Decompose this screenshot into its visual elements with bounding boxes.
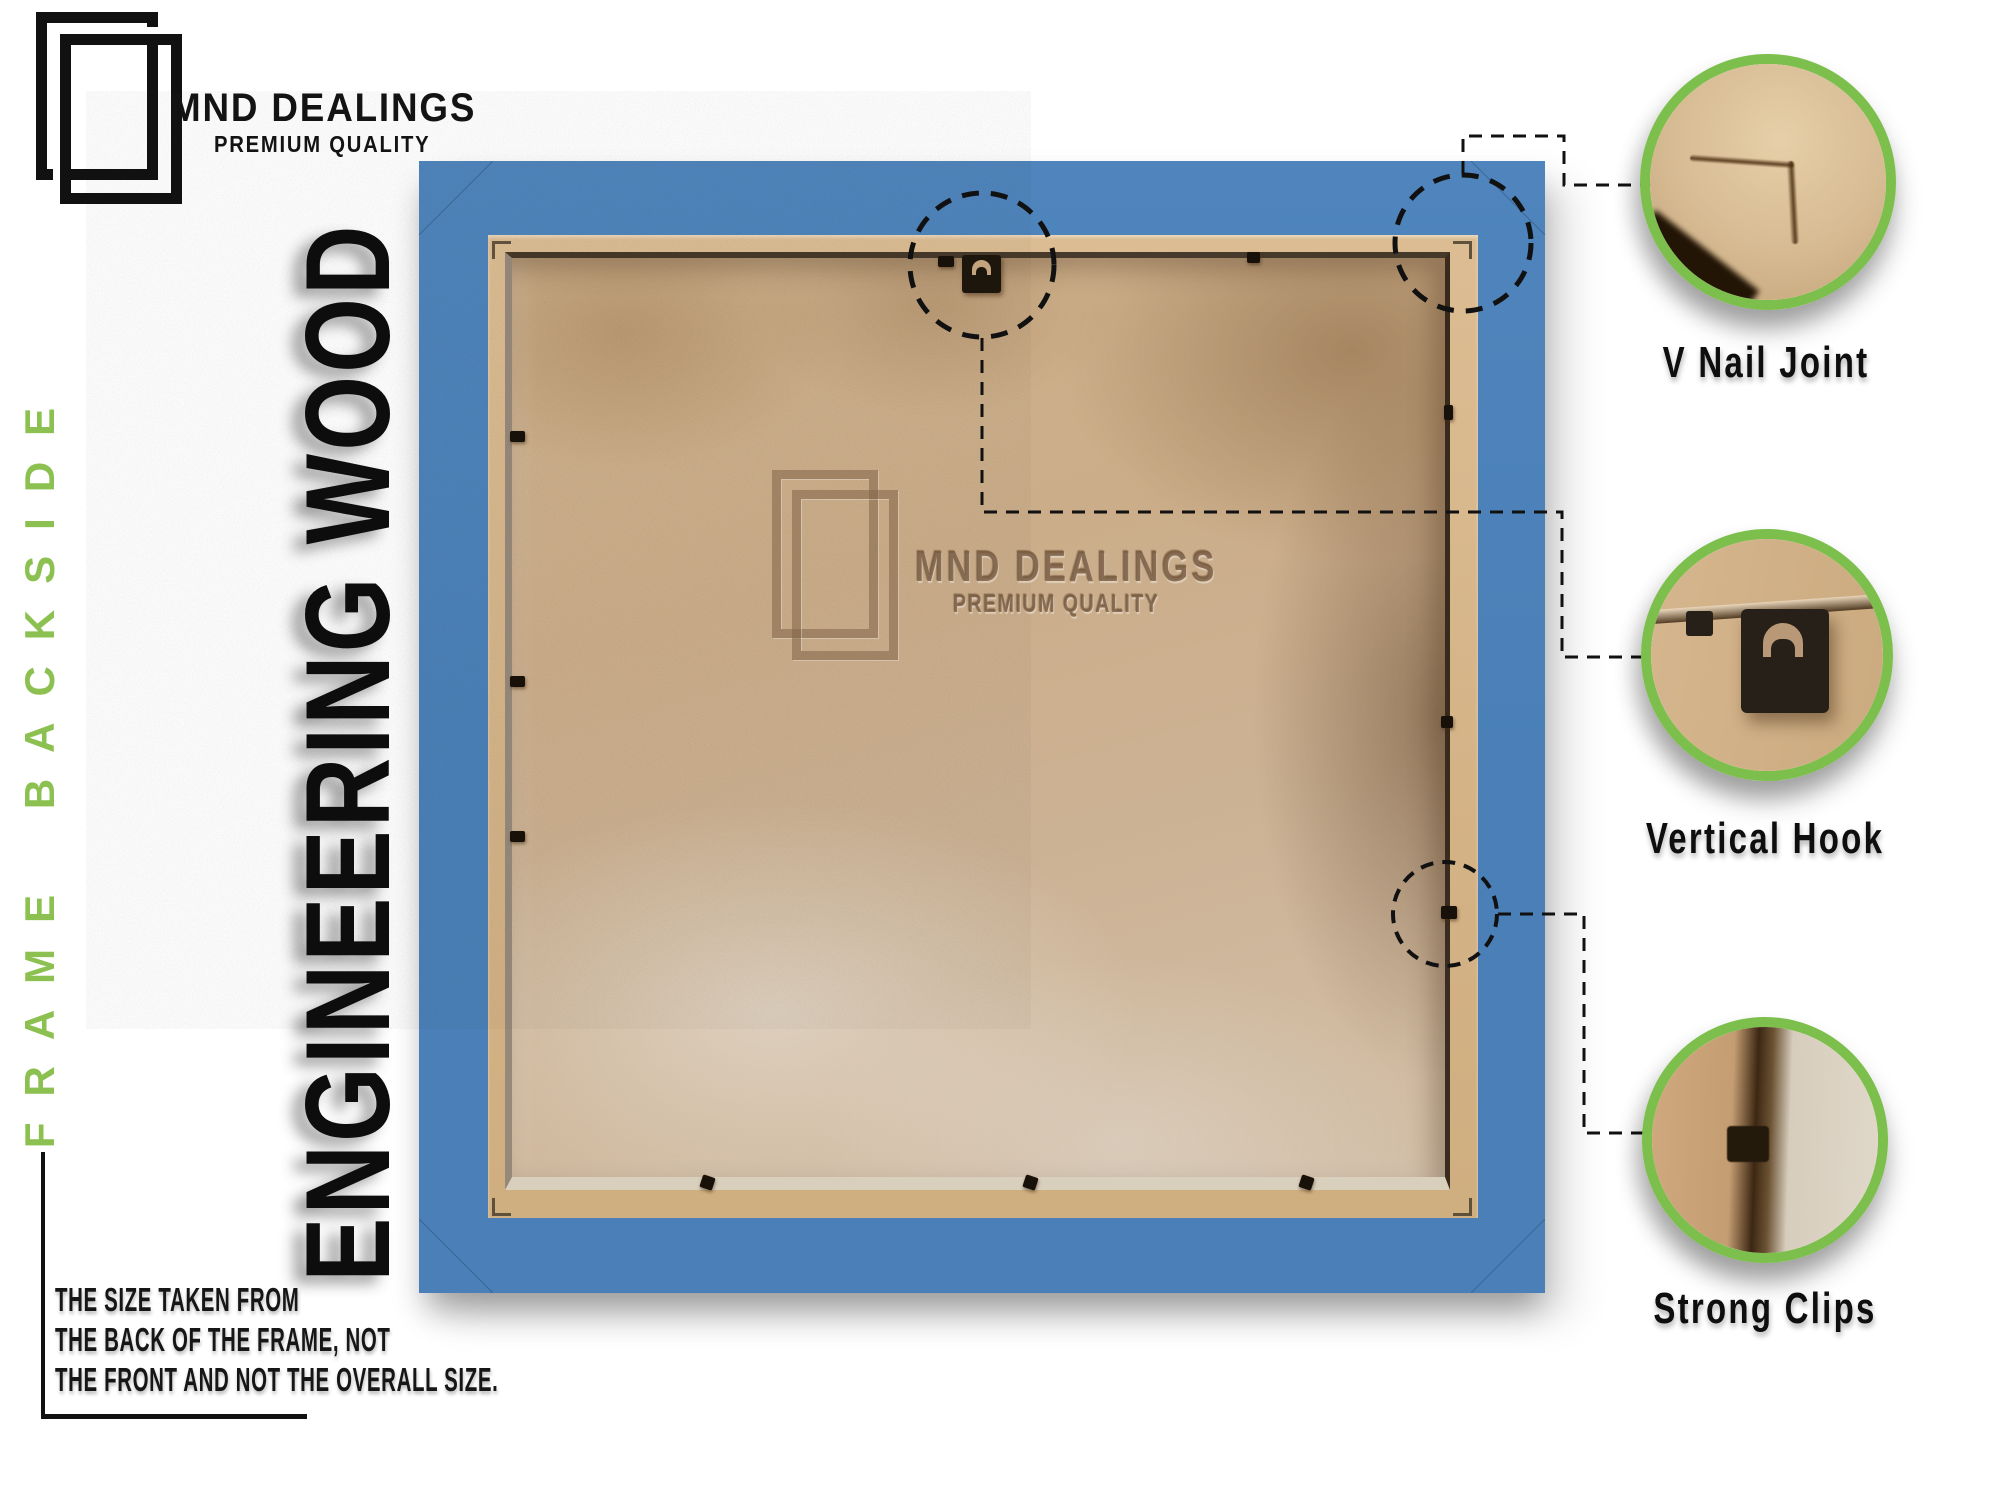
brand-frames-icon-front: [60, 34, 182, 204]
vertical-hook-zoomed: [1741, 609, 1829, 713]
back-clip: [938, 256, 954, 267]
frame-miter-joint: [419, 161, 493, 235]
frame-miter-joint: [419, 1219, 493, 1293]
hook-tab: [976, 267, 987, 279]
back-clip: [1444, 405, 1453, 420]
frame-backside-label: FRAME BACKSIDE: [16, 382, 64, 1148]
watermark-frames-icon-front: [792, 490, 898, 660]
callout-circle-v-nail: [1640, 54, 1896, 310]
size-note-line: THE BACK OF THE FRAME, NOT: [55, 1320, 498, 1360]
watermark-name: MND DEALINGS: [915, 542, 1217, 592]
callout-label-strong-clips: Strong Clips: [1653, 1284, 1876, 1334]
back-clip: [1441, 716, 1453, 728]
brand-frames-icon: [36, 12, 176, 192]
back-clip: [1247, 252, 1260, 263]
product-image-canvas: MND DEALINGS PREMIUM QUALITY FRAME BACKS…: [0, 0, 2000, 1500]
mdf-back-panel: [505, 252, 1450, 1190]
watermark-tagline: PREMIUM QUALITY: [953, 590, 1159, 619]
strong-clip: [1441, 906, 1457, 919]
size-note-line: THE FRONT AND NOT THE OVERALL SIZE.: [55, 1360, 498, 1400]
frame-backside-photo: [419, 161, 1545, 1293]
hook-tab: [1771, 639, 1795, 665]
v-nail-corner-mark: [1453, 241, 1472, 259]
callout-circle-vertical-hook: [1641, 529, 1893, 781]
callout-circle-strong-clips: [1642, 1017, 1888, 1263]
vertical-hook-hardware: [962, 255, 1001, 293]
v-nail-corner-mark: [492, 1198, 511, 1216]
back-clip: [510, 831, 525, 842]
size-note: THE SIZE TAKEN FROM THE BACK OF THE FRAM…: [55, 1280, 498, 1400]
frame-miter-joint: [1471, 161, 1545, 235]
v-nail-corner-mark: [1453, 1198, 1472, 1216]
back-clip: [510, 431, 525, 442]
strong-clip-zoomed: [1727, 1126, 1769, 1162]
note-rule-horizontal: [41, 1414, 307, 1419]
callout-label-v-nail: V Nail Joint: [1663, 338, 1870, 388]
note-rule-vertical: [41, 1152, 45, 1418]
engineering-wood-label: ENGINEERING WOOD: [279, 222, 417, 1281]
frame-miter-joint: [1471, 1219, 1545, 1293]
watermark-logo-icon: [772, 470, 902, 662]
callout-label-vertical-hook: Vertical Hook: [1646, 814, 1884, 864]
clip-square: [1686, 611, 1713, 636]
v-nail-corner-mark: [492, 241, 511, 259]
brand-name: MND DEALINGS: [170, 86, 476, 131]
back-clip: [510, 676, 525, 687]
brand-tagline: PREMIUM QUALITY: [214, 131, 430, 158]
